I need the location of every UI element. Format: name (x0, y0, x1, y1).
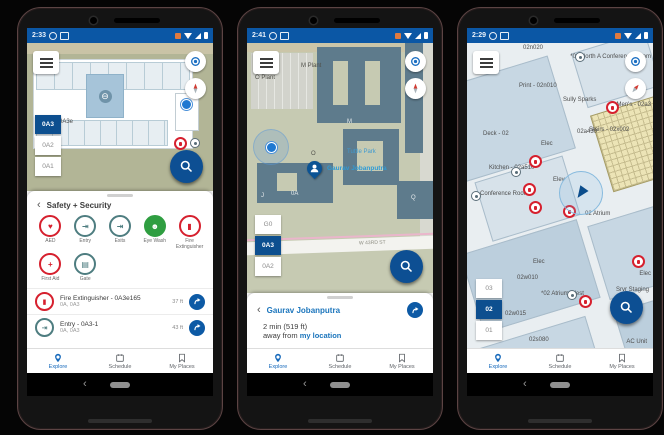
safety-poi-icon[interactable] (529, 201, 542, 214)
android-home-button[interactable] (550, 382, 570, 388)
stairs-area (590, 95, 653, 192)
tab-my-places[interactable]: My Places (371, 353, 433, 370)
safety-poi-icon[interactable] (523, 183, 536, 196)
locate-me-button[interactable] (625, 51, 646, 72)
category-eye-wash[interactable]: ☻ Eye Wash (137, 215, 172, 250)
tab-explore[interactable]: Explore (467, 353, 529, 370)
building-label: 0A (291, 191, 298, 197)
room-label: AC Unit (626, 339, 647, 345)
phone1-screen: 2:33 ⊖ 0A3e (27, 28, 213, 396)
status-time: 2:33 (32, 32, 46, 39)
room-label: 02n020 (523, 45, 543, 51)
result-title: Fire Extinguisher - 0A3e165 (60, 295, 166, 302)
wifi-icon (624, 33, 632, 39)
result-distance: 43 ft (172, 325, 183, 331)
floor-option[interactable]: 0A2 (35, 136, 61, 155)
result-title: Entry - 0A3-1 (60, 321, 166, 328)
safety-security-sheet: ‹ Safety + Security ♥ AED ⇥ Entry ⇥ Exit… (27, 191, 213, 348)
directions-button[interactable] (407, 302, 423, 318)
phone1-indoor-map[interactable]: ⊖ 0A3e (27, 43, 213, 191)
alarm-icon (49, 32, 57, 40)
android-home-button[interactable] (330, 382, 350, 388)
cell-signal-icon (415, 33, 421, 39)
compass-needle-icon (409, 82, 422, 95)
tab-explore[interactable]: Explore (247, 353, 309, 370)
tab-explore[interactable]: Explore (27, 353, 89, 370)
street-label: W 43RD ST (359, 240, 386, 247)
battery-icon (424, 32, 428, 39)
phone1-bottom-nav: Explore Schedule My Places (27, 348, 213, 373)
sheet-title: Safety + Security (47, 201, 112, 210)
room-label: Deck - 02 (483, 131, 509, 137)
target-icon (189, 55, 202, 68)
desktop-background: { "colors": { "status_bar_blue": "#0b57a… (0, 0, 664, 435)
building-label: M (347, 119, 352, 125)
floor-option-selected[interactable]: 0A3 (35, 115, 61, 134)
phone1-status-bar: 2:33 (27, 28, 213, 43)
room-label: Men's - 02a3 (617, 102, 652, 108)
floor-selector: 03 02 01 (476, 279, 502, 340)
screenshot-notification-icon (500, 32, 509, 40)
app-notification-icon (395, 33, 401, 39)
result-subtitle: 0A, 0A3 (60, 302, 166, 308)
category-entry[interactable]: ⇥ Entry (68, 215, 103, 250)
directions-arrow-icon (193, 297, 202, 306)
room-label: Stairs - 02x002 (589, 127, 629, 133)
person-pin-label: Gaurav Jobanputra (327, 165, 387, 172)
floor-selector: 0A3 0A2 0A1 (35, 115, 61, 176)
wifi-icon (184, 33, 192, 39)
tab-schedule[interactable]: Schedule (529, 353, 591, 370)
wifi-icon (404, 33, 412, 39)
entry-icon: ⇥ (35, 318, 54, 337)
android-home-button[interactable] (110, 382, 130, 388)
directions-arrow-icon (193, 323, 202, 332)
cell-signal-icon (195, 33, 201, 39)
gate-icon: ▤ (74, 253, 96, 275)
room-label: 02w015 (505, 311, 526, 317)
tab-my-places[interactable]: My Places (151, 353, 213, 370)
phone3-indoor-map[interactable]: 02n020 *02 North A Conference Room Print… (467, 43, 653, 348)
search-button[interactable] (610, 291, 643, 324)
compass-button[interactable] (405, 78, 426, 99)
room-label: Conference Room (480, 191, 529, 197)
floor-selector: G0 0A3 0A2 (255, 215, 281, 276)
fire-extinguisher-icon: ▮ (179, 215, 201, 237)
floor-option[interactable]: 0A2 (255, 257, 281, 276)
map-pin-icon (493, 353, 503, 363)
phone-device-1: 2:33 ⊖ 0A3e (17, 7, 223, 430)
alarm-icon (489, 32, 497, 40)
bookmark-icon (177, 353, 187, 363)
fire-extinguisher-icon: ▮ (35, 292, 54, 311)
locate-me-button[interactable] (405, 51, 426, 72)
status-time: 2:41 (252, 32, 266, 39)
category-exits[interactable]: ⇥ Exits (103, 215, 138, 250)
park-label: Tuttle Park (347, 149, 376, 155)
category-fire-extinguisher[interactable]: ▮ Fire Extinguisher (172, 215, 207, 250)
front-camera (90, 17, 97, 24)
building-label: M Plant (301, 63, 321, 69)
poi-icon[interactable] (575, 52, 585, 62)
target-icon (409, 55, 422, 68)
search-icon (619, 300, 634, 315)
fire-extinguisher-poi-icon[interactable] (174, 137, 187, 150)
earpiece-speaker (554, 18, 600, 23)
tab-my-places[interactable]: My Places (591, 353, 653, 370)
person-icon (307, 161, 322, 176)
bookmark-icon (617, 353, 627, 363)
result-row-fire-extinguisher[interactable]: ▮ Fire Extinguisher - 0A3e165 0A, 0A3 37… (27, 288, 213, 314)
map-pin-icon (53, 353, 63, 363)
poi-icon[interactable] (471, 191, 481, 201)
room-label: Sully Sparks (563, 97, 596, 103)
room-label: 0A3e (59, 119, 73, 125)
bookmark-icon (397, 353, 407, 363)
menu-button[interactable] (473, 51, 499, 74)
result-row-entry[interactable]: ⇥ Entry - 0A3-1 0A, 0A3 43 ft (27, 314, 213, 340)
floor-option-selected[interactable]: 0A3 (255, 236, 281, 255)
compass-needle-icon (189, 82, 202, 95)
screenshot-notification-icon (60, 32, 69, 40)
category-grid: ♥ AED ⇥ Entry ⇥ Exits ☻ Eye Wash (27, 212, 213, 288)
android-back-button[interactable]: ‹ (83, 378, 87, 390)
entry-icon: ⇥ (74, 215, 96, 237)
sheet-drag-handle[interactable] (107, 194, 133, 197)
floor-option[interactable]: 03 (476, 279, 502, 298)
sheet-drag-handle[interactable] (327, 296, 353, 299)
poi-icon[interactable] (567, 290, 577, 300)
first-aid-icon: + (39, 253, 61, 275)
person-pin[interactable] (304, 158, 325, 179)
directions-button[interactable] (189, 294, 205, 310)
earpiece-speaker (114, 18, 160, 23)
battery-icon (204, 32, 208, 39)
locate-me-button[interactable] (185, 51, 206, 72)
menu-button[interactable] (253, 51, 279, 74)
android-nav-bar: ‹ (27, 373, 213, 396)
travel-time: 2 min (519 ft) (247, 320, 433, 331)
category-gate[interactable]: ▤ Gate (68, 253, 103, 288)
android-nav-bar: ‹ (467, 373, 653, 396)
floor-option[interactable]: 01 (476, 321, 502, 340)
search-icon (179, 159, 194, 174)
earpiece-speaker (334, 18, 380, 23)
target-icon (629, 55, 642, 68)
phone-device-3: 2:29 02n020 (457, 7, 663, 430)
directions-button[interactable] (189, 320, 205, 336)
safety-poi-icon[interactable] (529, 155, 542, 168)
calendar-icon (335, 353, 345, 363)
room-label: 02s080 (529, 337, 549, 343)
eye-wash-icon: ☻ (144, 215, 166, 237)
room-label: 02w010 (517, 275, 538, 281)
floor-option[interactable]: 0A1 (35, 157, 61, 176)
search-icon (399, 259, 414, 274)
tab-schedule[interactable]: Schedule (89, 353, 151, 370)
front-camera (530, 17, 537, 24)
safety-poi-icon[interactable] (632, 255, 645, 268)
calendar-icon (115, 353, 125, 363)
room-label: Elec (533, 259, 545, 265)
phone2-campus-map[interactable]: W 43RD ST M Plant O Plant M Tuttle Park … (247, 43, 433, 293)
result-subtitle: 0A, 0A3 (60, 328, 166, 334)
my-location-link[interactable]: my location (300, 331, 342, 340)
app-notification-icon (175, 33, 181, 39)
poi-icon[interactable] (511, 167, 521, 177)
front-camera (310, 17, 317, 24)
heading-arrow-icon (573, 185, 588, 201)
phone2-screen: 2:41 (247, 28, 433, 396)
exit-icon: ⇥ (109, 215, 131, 237)
safety-poi-icon[interactable] (606, 101, 619, 114)
android-back-button[interactable]: ‹ (523, 378, 527, 390)
phone2-status-bar: 2:41 (247, 28, 433, 43)
search-button[interactable] (390, 250, 423, 283)
travel-origin: away from my location (247, 331, 433, 340)
map-pin-icon (273, 353, 283, 363)
current-location-halo (559, 171, 603, 215)
search-button[interactable] (170, 150, 203, 183)
elevator-room: ⊖ (86, 74, 124, 118)
phone2-bottom-nav: Explore Schedule My Places (247, 348, 433, 373)
screenshot-notification-icon (280, 32, 289, 40)
status-time: 2:29 (472, 32, 486, 39)
safety-poi-icon[interactable] (579, 295, 592, 308)
room-label: Print - 02n010 (519, 83, 557, 89)
back-button[interactable]: ‹ (257, 305, 261, 315)
back-button[interactable]: ‹ (37, 200, 41, 210)
android-nav-bar: ‹ (247, 373, 433, 396)
alarm-icon (269, 32, 277, 40)
building-label: O (311, 151, 316, 157)
category-first-aid[interactable]: + First Aid (33, 253, 68, 288)
sheet-title: Gaurav Jobanputra (267, 306, 401, 315)
person-detail-sheet: ‹ Gaurav Jobanputra 2 min (519 ft) away … (247, 293, 433, 348)
phone3-bottom-nav: Explore Schedule My Places (467, 348, 653, 373)
floor-option-selected[interactable]: 02 (476, 300, 502, 319)
compass-needle-icon (626, 79, 644, 97)
elevator-icon: ⊖ (99, 90, 112, 103)
tab-schedule[interactable]: Schedule (309, 353, 371, 370)
phone3-status-bar: 2:29 (467, 28, 653, 43)
phone-device-2: 2:41 (237, 7, 443, 430)
cell-signal-icon (635, 33, 641, 39)
menu-button[interactable] (33, 51, 59, 74)
room-label: *02 Atrium West (541, 291, 584, 297)
directions-arrow-icon (411, 306, 420, 315)
room-label: Elec (541, 141, 553, 147)
category-aed[interactable]: ♥ AED (33, 215, 68, 250)
current-location-dot (181, 99, 192, 110)
floor-option[interactable]: G0 (255, 215, 281, 234)
result-distance: 37 ft (172, 299, 183, 305)
current-location-dot (266, 142, 277, 153)
building-label: J (261, 193, 264, 199)
room-label: Elec (639, 271, 651, 277)
battery-icon (644, 32, 648, 39)
compass-button[interactable] (625, 78, 646, 99)
building-label: Q (411, 195, 416, 201)
aed-icon: ♥ (39, 215, 61, 237)
app-notification-icon (615, 33, 621, 39)
phone3-screen: 2:29 02n020 (467, 28, 653, 396)
calendar-icon (555, 353, 565, 363)
building-label: O Plant (255, 75, 275, 81)
android-back-button[interactable]: ‹ (303, 378, 307, 390)
compass-button[interactable] (185, 78, 206, 99)
poi-icon[interactable] (190, 138, 200, 148)
